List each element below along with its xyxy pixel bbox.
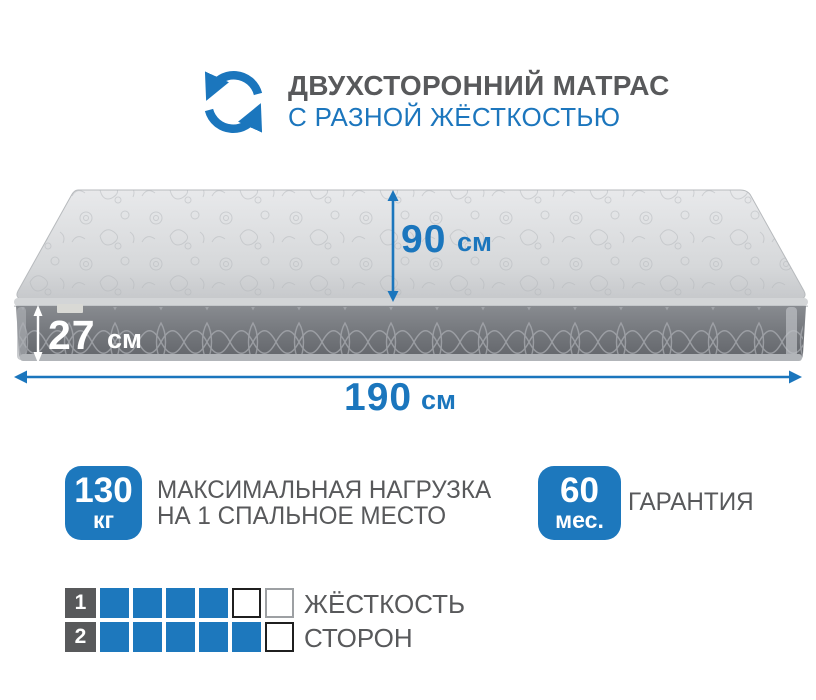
rotate-two-sided-icon [196, 60, 270, 142]
height-value: 27 [48, 312, 96, 358]
scale-cell-filled [133, 622, 162, 652]
scale-cell-filled [199, 622, 228, 652]
width-value: 90 [401, 218, 446, 261]
mattress-diagram: 27 см 90 см 190 см [0, 160, 816, 420]
width-unit: см [457, 227, 492, 257]
max-load-label-line1: МАКСИМАЛЬНАЯ НАГРУЗКА [157, 477, 491, 503]
firmness-label-line1: ЖЁСТКОСТЬ [304, 589, 465, 619]
max-load-value: 130 [74, 474, 132, 508]
scale-cell-filled [166, 588, 195, 618]
scale-cell-filled [100, 622, 129, 652]
scale-cell-filled [199, 588, 228, 618]
scale-cell-filled [133, 588, 162, 618]
warranty-label: ГАРАНТИЯ [628, 489, 754, 515]
scale-cell-filled [232, 622, 261, 652]
side-number: 2 [65, 622, 96, 652]
firmness-label: ЖЁСТКОСТЬ СТОРОН [304, 589, 465, 653]
firmness-row: 2 [65, 622, 294, 652]
firmness-row: 1 [65, 588, 294, 618]
height-unit: см [107, 324, 142, 354]
scale-cell-empty [265, 622, 294, 652]
scale-cell-empty [265, 588, 294, 618]
scale-cell-empty [232, 588, 261, 618]
scale-cell-filled [100, 588, 129, 618]
warranty-value: 60 [560, 474, 599, 508]
max-load-badge: 130 кг [65, 466, 142, 540]
page-subtitle: С РАЗНОЙ ЖЁСТКОСТЬЮ [288, 102, 620, 133]
max-load-unit: кг [93, 508, 114, 532]
length-value: 190 [344, 376, 412, 419]
page-title: ДВУХСТОРОННИЙ МАТРАС [288, 70, 670, 102]
warranty-unit: мес. [555, 508, 604, 532]
warranty-badge: 60 мес. [538, 466, 621, 540]
length-unit: см [421, 385, 456, 415]
firmness-label-line2: СТОРОН [304, 623, 465, 653]
max-load-label-line2: НА 1 СПАЛЬНОЕ МЕСТО [157, 503, 491, 529]
max-load-label: МАКСИМАЛЬНАЯ НАГРУЗКА НА 1 СПАЛЬНОЕ МЕСТ… [157, 477, 491, 529]
side-number: 1 [65, 588, 96, 618]
mattress-tape-edge [14, 298, 808, 306]
firmness-rows: 12 [65, 588, 294, 652]
scale-cell-filled [166, 622, 195, 652]
